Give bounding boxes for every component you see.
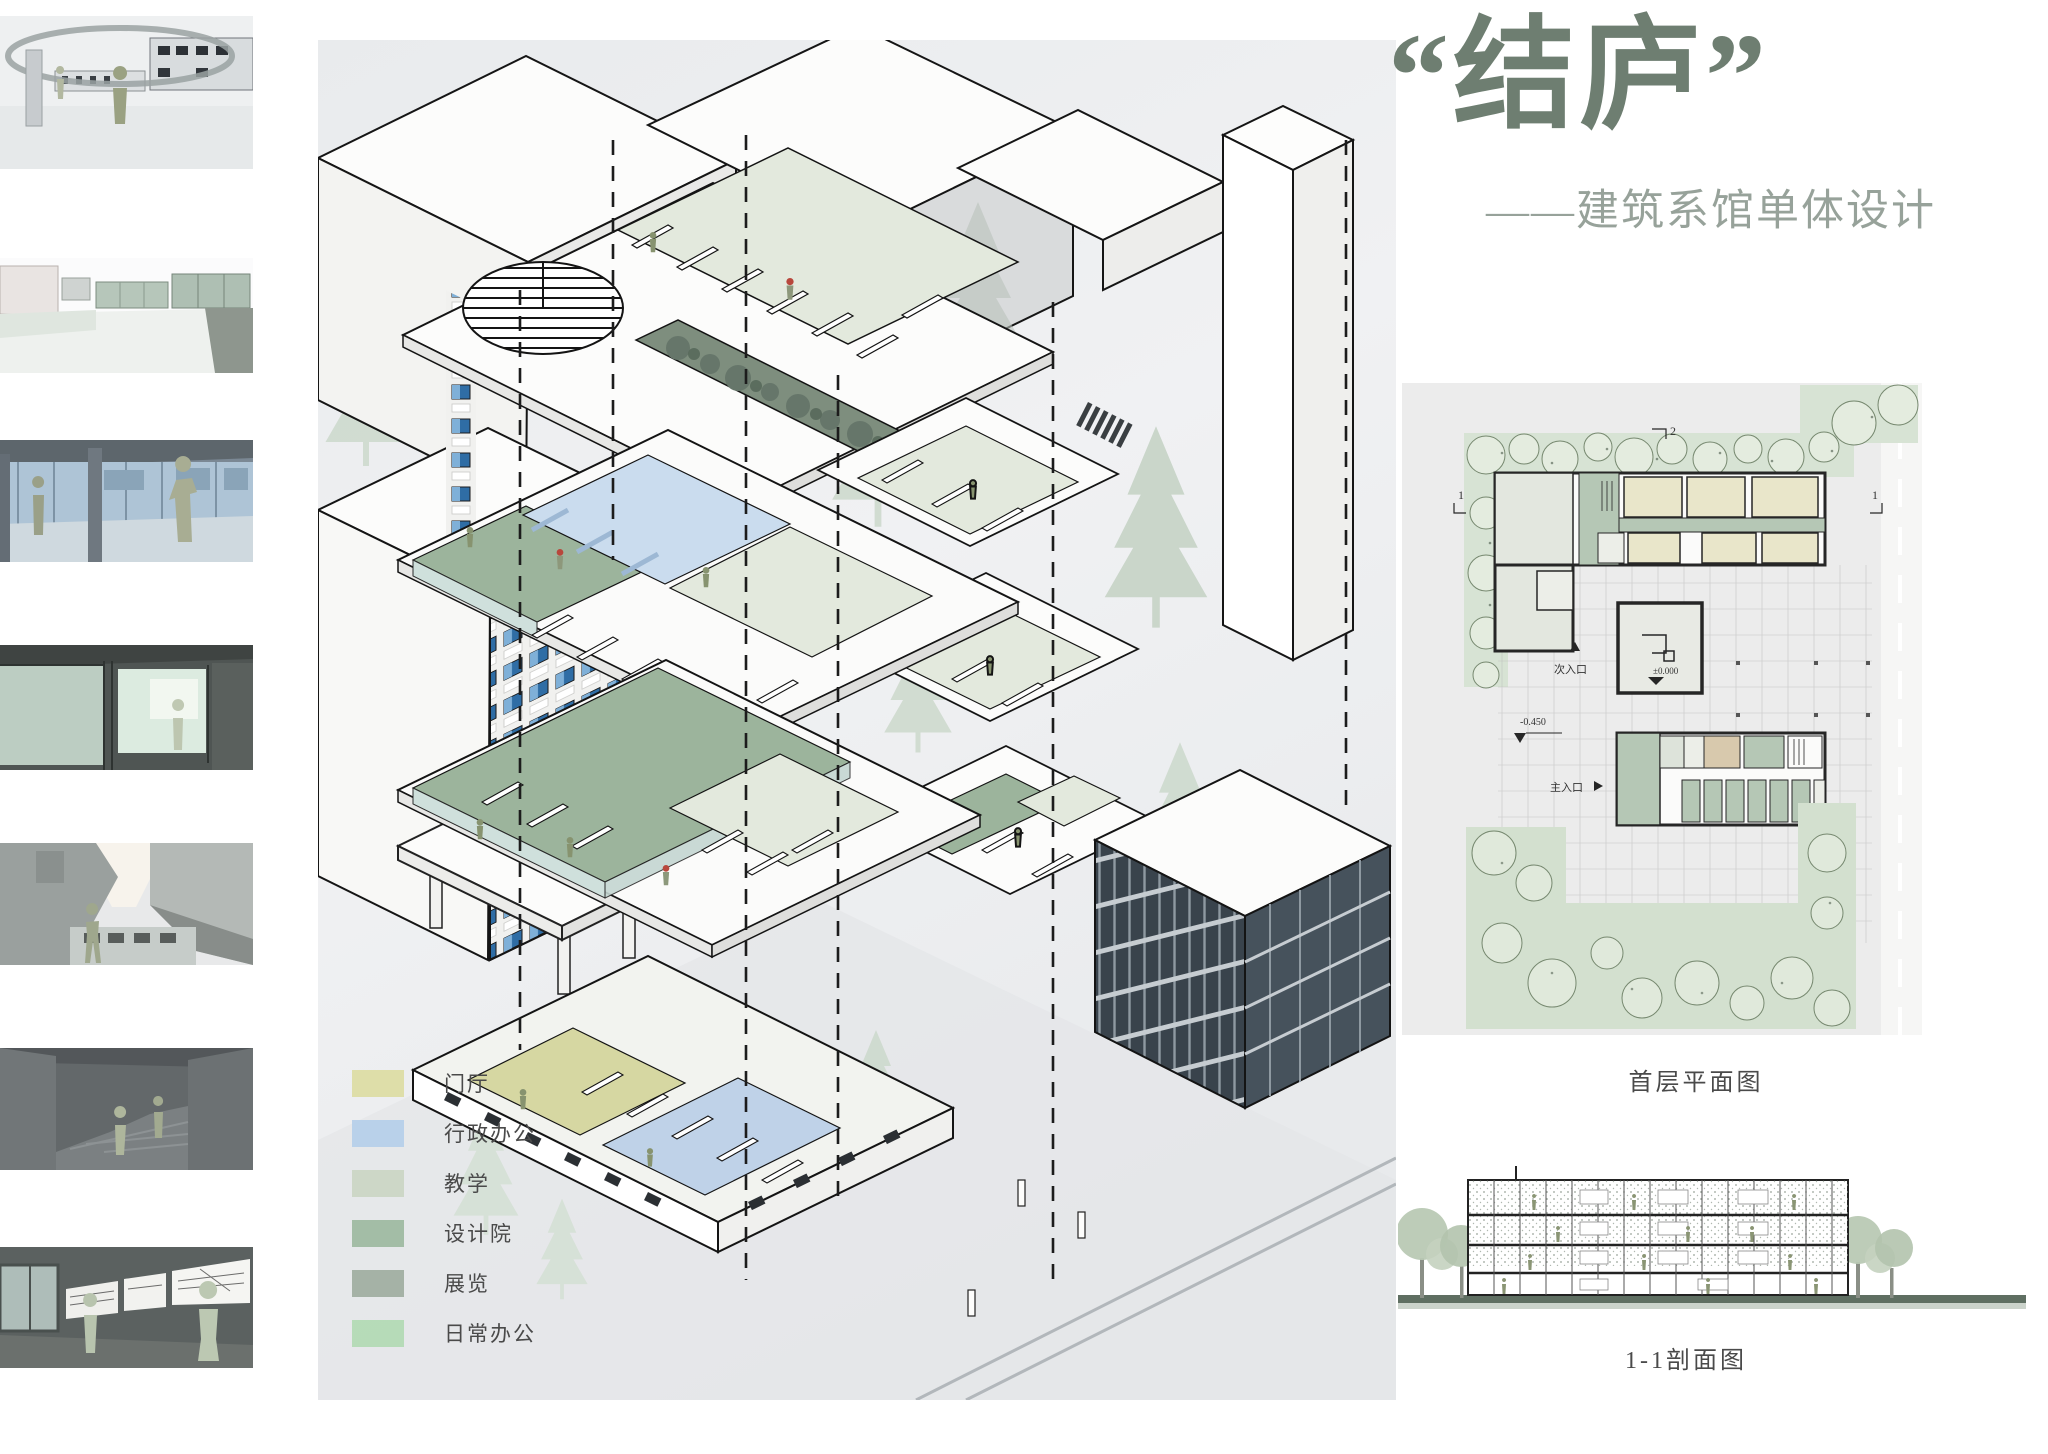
plan-secondary-entrance: 次入口 — [1554, 662, 1587, 676]
thumbnail-interior-green-glass — [0, 645, 253, 770]
legend-swatch-lobby — [352, 1070, 404, 1097]
section-drawing — [1398, 1162, 2026, 1352]
section-drawing-box — [1398, 1162, 2026, 1352]
section-ground — [1398, 1295, 2026, 1303]
plan-section-mark-right: 1 — [1872, 488, 1878, 502]
thumbnail-glazed-colonnade — [0, 440, 253, 562]
legend-swatch-daily-office — [352, 1320, 404, 1347]
stair-hall-render — [0, 1048, 253, 1170]
legend-label: 行政办公 — [444, 1118, 536, 1148]
first-floor-plan: ±0.000 2 1 1 次入口 -0.450 主入口 — [1402, 383, 1960, 1035]
glazed-colonnade-render — [0, 440, 253, 562]
thumbnail-courtyard-canyon — [0, 843, 253, 965]
plan-upper-wing — [1495, 473, 1825, 565]
legend-swatch-exhibition — [352, 1270, 404, 1297]
legend-label: 设计院 — [444, 1218, 513, 1248]
legend: 门厅 行政办公 教学 设计院 展览 日常办公 — [352, 1058, 622, 1358]
courtyard-canyon-render — [0, 843, 253, 965]
roof-terrace-render — [0, 258, 253, 373]
plan-level-main: ±0.000 — [1653, 666, 1679, 676]
poster-title: “结庐” — [1388, 10, 2048, 144]
thumbnail-exhibition-corridor — [0, 1247, 253, 1368]
legend-item-lobby: 门厅 — [352, 1058, 622, 1108]
section-caption: 1-1剖面图 — [1556, 1340, 1816, 1375]
plan-drawing: ±0.000 2 1 1 次入口 -0.450 主入口 — [1402, 383, 1960, 1035]
legend-label: 教学 — [444, 1168, 490, 1198]
section-building — [1468, 1166, 1848, 1295]
legend-item-daily-office: 日常办公 — [352, 1308, 622, 1358]
plan-section-mark-top: 2 — [1670, 424, 1676, 438]
legend-swatch-teaching — [352, 1170, 404, 1197]
legend-item-teaching: 教学 — [352, 1158, 622, 1208]
thumbnail-entry-ring — [0, 16, 253, 169]
legend-label: 展览 — [444, 1268, 490, 1298]
legend-swatch-design-institute — [352, 1220, 404, 1247]
legend-label: 日常办公 — [444, 1318, 536, 1348]
plan-main-entrance: 主入口 — [1550, 781, 1583, 794]
plan-pavilion: ±0.000 — [1618, 603, 1702, 693]
plan-section-mark-left: 1 — [1458, 488, 1464, 502]
legend-item-exhibition: 展览 — [352, 1258, 622, 1308]
thumbnail-roof-terrace — [0, 258, 253, 373]
plan-level-entry: -0.450 — [1520, 717, 1546, 728]
legend-label: 门厅 — [444, 1068, 490, 1098]
plan-lower-wing — [1617, 733, 1825, 825]
legend-swatch-admin — [352, 1120, 404, 1147]
plan-lower-left-block — [1495, 565, 1573, 651]
interior-green-glass-render — [0, 645, 253, 770]
entry-ring-render — [0, 16, 253, 169]
poster-subtitle: ——建筑系馆单体设计 — [1486, 176, 2046, 238]
legend-item-design-institute: 设计院 — [352, 1208, 622, 1258]
thumbnail-stair-hall — [0, 1048, 253, 1170]
plan-caption: 首层平面图 — [1566, 1062, 1826, 1097]
exhibition-corridor-render — [0, 1247, 253, 1368]
legend-item-admin: 行政办公 — [352, 1108, 622, 1158]
